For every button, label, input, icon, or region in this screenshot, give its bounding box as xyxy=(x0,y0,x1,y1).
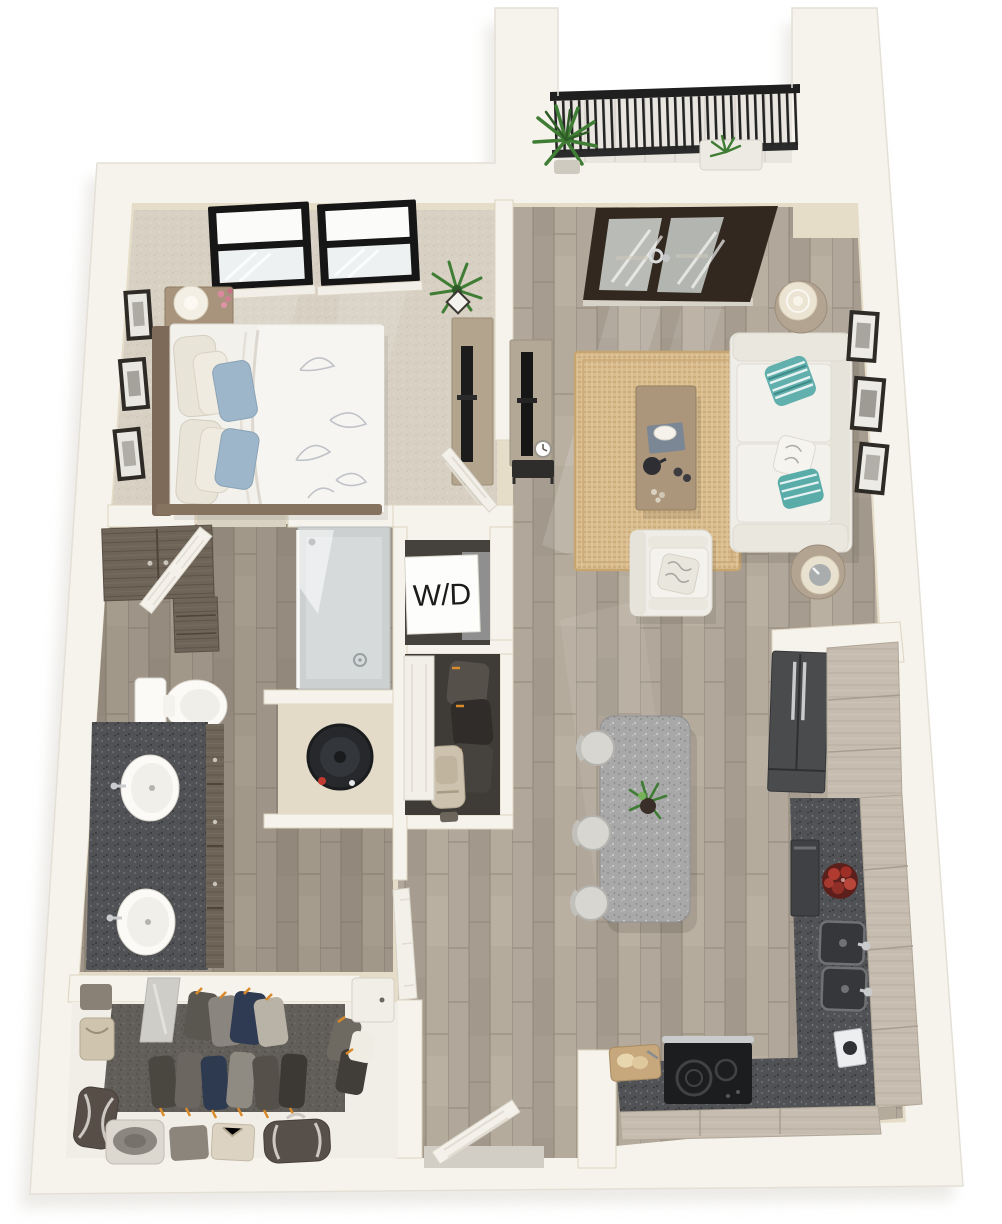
sofa xyxy=(730,333,859,563)
bar-stool xyxy=(578,731,614,765)
double-vanity xyxy=(86,722,224,970)
living-tv xyxy=(521,352,533,456)
washer-dryer-label: W/D xyxy=(412,578,471,613)
armchair-pillow xyxy=(657,553,701,596)
coffee-table xyxy=(636,386,701,519)
french-doors xyxy=(583,206,778,306)
bed xyxy=(152,324,388,520)
closet-folded-shirt xyxy=(211,1123,255,1161)
closet-hat-box xyxy=(106,1120,164,1164)
wall-laundry-right xyxy=(490,527,513,650)
washer-dryer-unit: W/D xyxy=(405,555,481,635)
skylight-window-2 xyxy=(313,199,423,295)
laundry-closet: W/D xyxy=(405,540,490,645)
range-cooktop xyxy=(662,1036,754,1104)
balcony-planter xyxy=(700,136,762,170)
bar-stool xyxy=(572,886,608,920)
fruit-bowl xyxy=(822,863,858,899)
water-heater-closet xyxy=(278,704,393,814)
floorplan-svg: W/D xyxy=(0,0,1002,1224)
wall-closet-right xyxy=(396,1000,422,1158)
wall-clock xyxy=(535,441,551,457)
kitchen-cabinet-fronts-bottom xyxy=(620,1106,881,1140)
closet-folded-clothes xyxy=(80,984,114,1060)
wall-coat-closet-right xyxy=(500,654,513,822)
kitchen-upper-cabinets xyxy=(827,642,902,800)
cutting-board xyxy=(609,1044,661,1081)
bedroom-tv xyxy=(461,346,473,462)
wall-heater-bottom xyxy=(264,814,393,828)
dishwasher xyxy=(791,840,819,916)
bar-stool xyxy=(574,816,610,850)
walk-in-shower xyxy=(298,527,390,689)
media-console xyxy=(510,340,554,484)
coat-closet-door xyxy=(404,656,434,800)
wall-heater-top xyxy=(264,690,393,704)
counter-frame-decor xyxy=(834,1028,867,1068)
closet-folded-stack xyxy=(169,1125,209,1162)
armchair xyxy=(630,530,716,624)
floorplan-3d-render: W/D xyxy=(0,0,1002,1224)
skylight-window-1 xyxy=(204,201,316,299)
coat-closet xyxy=(404,654,500,823)
side-table-top xyxy=(775,281,827,333)
refrigerator xyxy=(768,651,830,793)
console-bench xyxy=(512,460,554,478)
closet-shelf-box xyxy=(352,978,394,1022)
side-table-bottom xyxy=(791,545,845,599)
bed-footboard xyxy=(156,504,382,515)
